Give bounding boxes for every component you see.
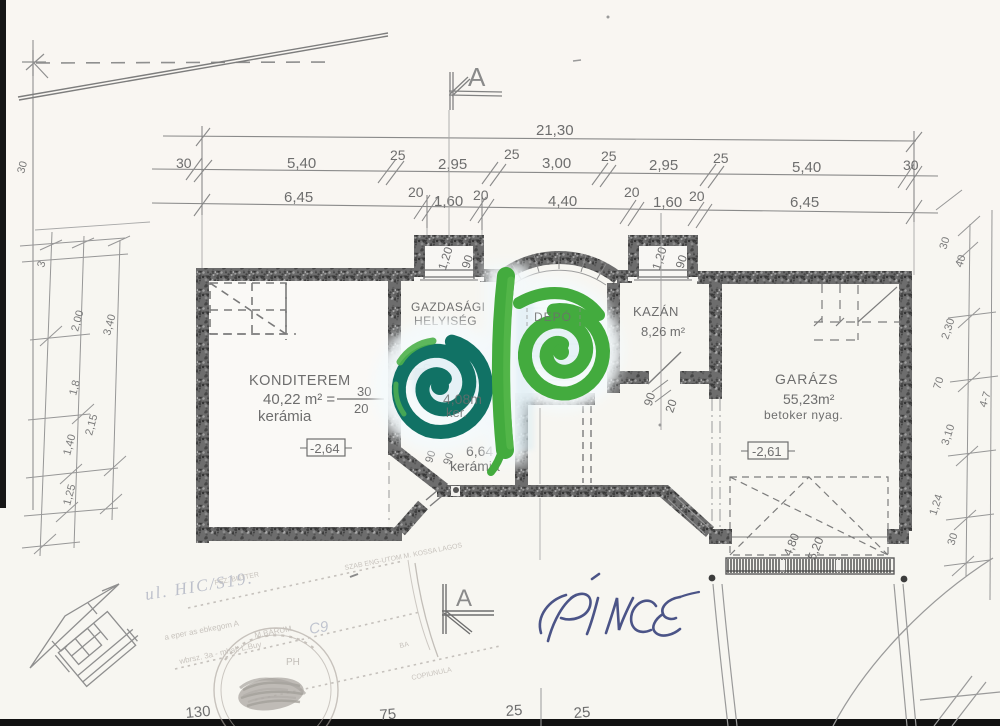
svg-text:20: 20 <box>624 184 640 200</box>
svg-text:25: 25 <box>713 150 729 166</box>
svg-text:30: 30 <box>176 155 192 171</box>
svg-text:75: 75 <box>379 706 397 724</box>
svg-text:8,26 m²: 8,26 m² <box>641 324 686 339</box>
svg-text:kerámia: kerámia <box>258 408 312 425</box>
svg-text:25: 25 <box>573 704 591 722</box>
svg-text:5,40: 5,40 <box>792 159 821 176</box>
svg-text:ker.: ker. <box>446 405 467 420</box>
svg-text:A: A <box>456 585 472 612</box>
svg-text:A: A <box>468 62 486 92</box>
svg-text:40,22 m² =: 40,22 m² = <box>263 391 335 408</box>
svg-text:-2,61: -2,61 <box>752 444 782 459</box>
svg-text:5,40: 5,40 <box>287 155 316 172</box>
svg-text:betoker nyag.: betoker nyag. <box>764 408 843 422</box>
svg-text:2,95: 2,95 <box>438 156 467 173</box>
svg-text:30: 30 <box>903 157 919 173</box>
svg-text:30: 30 <box>357 384 371 399</box>
svg-text:55,23m²: 55,23m² <box>783 391 835 407</box>
svg-text:25: 25 <box>505 702 523 720</box>
svg-text:PH: PH <box>286 657 300 668</box>
svg-text:4,40: 4,40 <box>548 193 577 210</box>
svg-text:1,60: 1,60 <box>653 194 682 211</box>
svg-text:130: 130 <box>185 703 211 722</box>
svg-text:20: 20 <box>473 187 489 203</box>
svg-text:3,00: 3,00 <box>542 155 571 172</box>
svg-text:20: 20 <box>689 188 705 204</box>
svg-text:20: 20 <box>354 401 368 416</box>
svg-text:6,45: 6,45 <box>284 189 313 206</box>
svg-text:GARÁZS: GARÁZS <box>775 371 839 387</box>
svg-text:25: 25 <box>504 146 520 162</box>
svg-text:C9: C9 <box>308 618 330 638</box>
svg-text:25: 25 <box>601 148 617 164</box>
svg-text:21,30: 21,30 <box>536 122 574 139</box>
svg-text:GAZDASÁGI: GAZDASÁGI <box>411 299 486 314</box>
svg-text:KONDITEREM: KONDITEREM <box>249 373 351 389</box>
svg-text:6,45: 6,45 <box>790 194 819 211</box>
svg-text:DEPÓ: DEPÓ <box>534 309 572 324</box>
svg-text:20: 20 <box>408 184 424 200</box>
svg-text:2,95: 2,95 <box>649 157 678 174</box>
svg-text:25: 25 <box>390 147 406 163</box>
svg-text:KAZÁN: KAZÁN <box>633 304 679 319</box>
svg-text:-2,64: -2,64 <box>310 441 340 456</box>
